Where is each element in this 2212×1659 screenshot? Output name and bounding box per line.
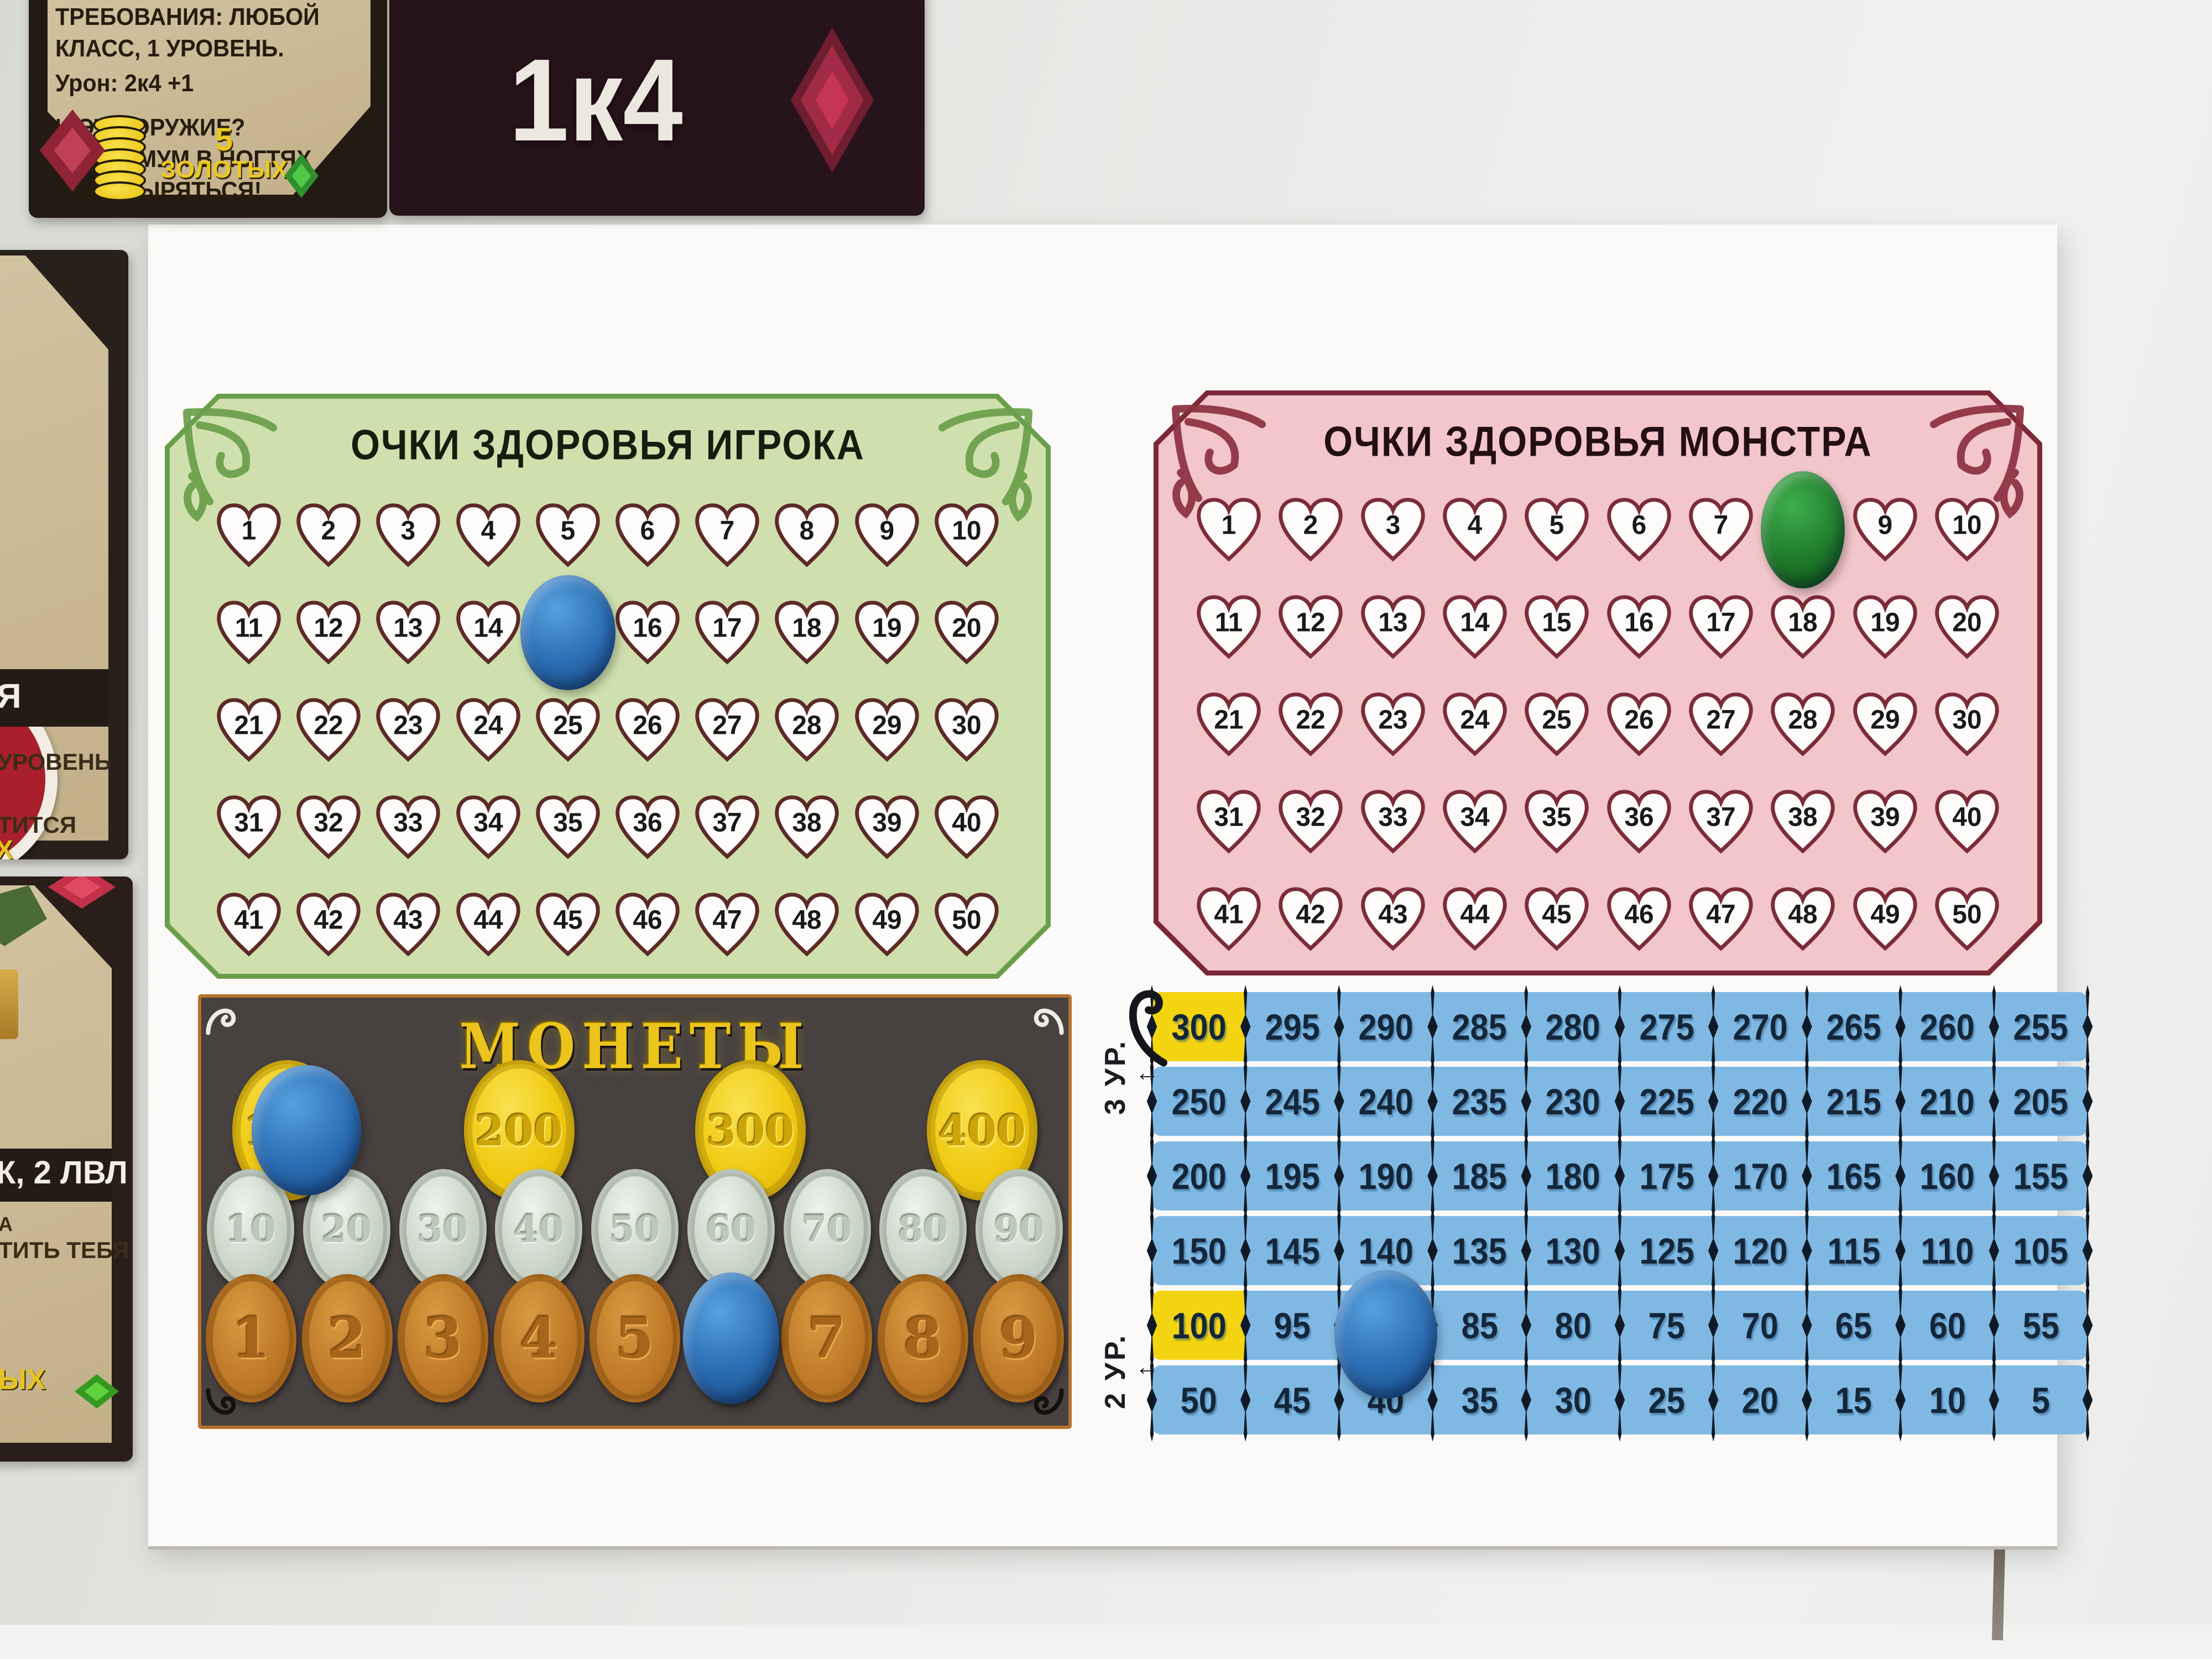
heart-39: 39: [847, 779, 927, 876]
weapon-card-cost: 5 ЗОЛОТЫХ: [160, 124, 288, 184]
heart-5: 5: [1516, 481, 1598, 578]
heart-24: 24: [1434, 676, 1516, 773]
track-cell-210: 210: [1901, 1067, 1994, 1136]
player-hearts-grid: 1234567891011121314151617181920212223242…: [209, 487, 1006, 973]
track-cell-50: 50: [1152, 1365, 1245, 1434]
svg-text:36: 36: [1624, 803, 1653, 832]
track-cell-90: 90: [1339, 1291, 1432, 1360]
copper-coin-7: 7: [781, 1274, 872, 1402]
heart-49: 49: [1844, 870, 1926, 968]
heart-8: 8: [767, 487, 847, 584]
track-cell-160: 160: [1901, 1141, 1994, 1211]
heart-11: 11: [1188, 578, 1270, 676]
track-token[interactable]: [1334, 1270, 1437, 1399]
svg-text:15: 15: [1542, 608, 1572, 638]
track-cell-95: 95: [1245, 1291, 1339, 1360]
heart-2: 2: [289, 487, 368, 584]
heart-48: 48: [767, 876, 847, 973]
silver-coin-90: 90: [975, 1169, 1063, 1290]
card-fragment: ТИТСЯ: [0, 812, 76, 838]
heart-22: 22: [1270, 676, 1352, 773]
svg-text:17: 17: [1706, 608, 1735, 638]
copper-coin-9: 9: [973, 1274, 1064, 1402]
svg-text:12: 12: [314, 614, 343, 643]
heart-10: 10: [927, 487, 1006, 584]
svg-text:23: 23: [394, 711, 423, 740]
track-cell-175: 175: [1620, 1141, 1713, 1211]
scroll-curl-icon: [205, 1387, 240, 1422]
heart-21: 21: [209, 681, 289, 779]
dice-card: 1к4: [389, 0, 925, 216]
scroll-curl-icon: [1030, 1387, 1065, 1422]
player-health-token[interactable]: [520, 575, 615, 690]
track-cell-180: 180: [1526, 1141, 1620, 1211]
coin-token[interactable]: [252, 1065, 361, 1196]
track-cell-190: 190: [1339, 1141, 1432, 1211]
svg-text:26: 26: [633, 711, 662, 740]
svg-text:7: 7: [720, 517, 735, 546]
svg-text:20: 20: [952, 614, 981, 643]
svg-text:39: 39: [872, 808, 901, 838]
heart-21: 21: [1188, 676, 1270, 773]
scroll-curl-icon: [1112, 984, 1173, 1067]
heart-30: 30: [927, 681, 1006, 779]
copper-coin-8: 8: [878, 1274, 968, 1402]
svg-text:13: 13: [1378, 608, 1407, 638]
svg-text:28: 28: [1788, 706, 1818, 735]
svg-text:32: 32: [314, 808, 343, 838]
heart-11: 11: [209, 584, 289, 681]
heart-17: 17: [1680, 578, 1762, 676]
track-cell-195: 195: [1245, 1141, 1339, 1211]
svg-text:37: 37: [1706, 803, 1735, 832]
svg-text:49: 49: [1870, 900, 1900, 930]
track-row-5: 100959085807570656055: [1152, 1291, 2088, 1360]
heart-50: 50: [1926, 870, 2008, 968]
track-cell-120: 120: [1713, 1216, 1807, 1285]
heart-35: 35: [1516, 773, 1598, 870]
level-range-arrow-icon: ↕: [1132, 1071, 1160, 1083]
heart-28: 28: [1762, 676, 1844, 773]
svg-text:8: 8: [800, 517, 815, 546]
heart-4: 4: [448, 487, 528, 584]
heart-45: 45: [1516, 870, 1598, 968]
svg-text:39: 39: [1870, 803, 1900, 832]
svg-text:43: 43: [1378, 900, 1407, 930]
svg-text:24: 24: [1460, 706, 1490, 735]
svg-text:34: 34: [473, 808, 503, 838]
svg-text:44: 44: [473, 906, 503, 935]
track-cell-255: 255: [1994, 992, 2088, 1061]
heart-19: 19: [1844, 578, 1926, 676]
svg-text:25: 25: [553, 711, 582, 740]
svg-text:46: 46: [1624, 900, 1653, 930]
silver-coin-80: 80: [879, 1169, 967, 1290]
track-cell-100: 100: [1152, 1291, 1245, 1360]
card-fragment: ЫХ: [0, 1363, 46, 1396]
card-fragment: Х: [0, 835, 13, 859]
heart-12: 12: [289, 584, 368, 681]
svg-text:9: 9: [1877, 511, 1892, 540]
track-cell-5: 5: [1994, 1365, 2088, 1434]
heart-20: 20: [927, 584, 1006, 681]
monster-hearts-grid: 1234567891011121314151617181920212223242…: [1188, 481, 2008, 968]
svg-text:18: 18: [1788, 608, 1818, 638]
heart-20: 20: [1926, 578, 2008, 676]
svg-text:2: 2: [1303, 511, 1318, 540]
svg-text:22: 22: [1296, 706, 1326, 735]
heart-31: 31: [209, 779, 289, 876]
heart-6: 6: [1598, 481, 1680, 578]
svg-text:6: 6: [1631, 511, 1646, 540]
track-cell-25: 25: [1620, 1365, 1713, 1434]
svg-text:17: 17: [713, 614, 742, 643]
track-cell-225: 225: [1620, 1067, 1713, 1136]
track-row-4: 150145140135130125120115110105: [1152, 1216, 2088, 1285]
heart-43: 43: [1352, 870, 1434, 968]
copper-coin-5: 5: [589, 1274, 680, 1402]
track-row-2: 250245240235230225220215210205: [1152, 1067, 2088, 1136]
scroll-curl-icon: [1030, 1001, 1065, 1036]
heart-46: 46: [608, 876, 687, 973]
heart-29: 29: [1844, 676, 1926, 773]
svg-text:5: 5: [1550, 511, 1564, 540]
level-range-arrow-icon: ↕: [1132, 1365, 1160, 1377]
heart-18: 18: [767, 584, 847, 681]
svg-text:41: 41: [1214, 900, 1244, 930]
track-cell-45: 45: [1245, 1365, 1339, 1434]
svg-text:41: 41: [234, 906, 263, 935]
heart-3: 3: [1352, 481, 1434, 578]
svg-text:7: 7: [1714, 511, 1729, 540]
heart-15: 15: [1516, 578, 1598, 676]
svg-text:22: 22: [314, 711, 343, 740]
card-fragment: А: [0, 1213, 13, 1236]
track-cell-235: 235: [1433, 1067, 1526, 1136]
heart-1: 1: [1188, 481, 1270, 578]
heart-44: 44: [1434, 870, 1516, 968]
track-cell-110: 110: [1901, 1216, 1994, 1285]
svg-text:37: 37: [713, 808, 742, 838]
copper-coin-4: 4: [494, 1274, 585, 1402]
track-cell-170: 170: [1713, 1141, 1807, 1211]
heart-9: 9: [1844, 481, 1926, 578]
svg-text:27: 27: [713, 711, 742, 740]
svg-text:49: 49: [872, 906, 901, 935]
svg-text:18: 18: [792, 614, 822, 643]
track-cell-10: 10: [1901, 1365, 1994, 1434]
svg-text:33: 33: [394, 808, 423, 838]
heart-47: 47: [1680, 870, 1762, 968]
track-cell-65: 65: [1807, 1291, 1900, 1360]
svg-text:48: 48: [1788, 900, 1818, 930]
svg-text:47: 47: [713, 906, 742, 935]
svg-text:1: 1: [1222, 511, 1237, 540]
heart-16: 16: [1598, 578, 1680, 676]
svg-text:42: 42: [1296, 900, 1326, 930]
heart-46: 46: [1598, 870, 1680, 968]
scroll-curl-icon: [205, 1001, 240, 1036]
heart-33: 33: [368, 779, 448, 876]
track-cell-80: 80: [1526, 1291, 1620, 1360]
track-cell-285: 285: [1433, 992, 1526, 1061]
svg-text:16: 16: [1624, 608, 1653, 638]
heart-28: 28: [767, 681, 847, 779]
track-cell-15: 15: [1807, 1365, 1900, 1434]
heart-34: 34: [448, 779, 528, 876]
svg-text:11: 11: [1215, 608, 1243, 638]
track-cell-260: 260: [1901, 992, 1994, 1061]
svg-text:35: 35: [1542, 803, 1572, 832]
heart-33: 33: [1352, 773, 1434, 870]
cost-label: ЗОЛОТЫХ: [160, 156, 288, 184]
silver-coin-30: 30: [399, 1169, 487, 1290]
svg-text:19: 19: [1870, 608, 1900, 638]
heart-31: 31: [1188, 773, 1270, 870]
track-cell-70: 70: [1713, 1291, 1807, 1360]
level-label-2: 2 УР.↕: [1099, 1302, 1138, 1440]
svg-text:26: 26: [1624, 706, 1653, 735]
track-row-6: 5045403530252015105: [1152, 1365, 2088, 1434]
heart-2: 2: [1270, 481, 1352, 578]
heart-42: 42: [1270, 870, 1352, 968]
svg-text:36: 36: [633, 808, 662, 838]
heart-4: 4: [1434, 481, 1516, 578]
heart-18: 18: [1762, 578, 1844, 676]
heart-3: 3: [368, 487, 448, 584]
player-health-title: ОЧКИ ЗДОРОВЬЯ ИГРОКА: [165, 394, 1051, 469]
heart-7: 7: [1680, 481, 1762, 578]
heart-40: 40: [1926, 773, 2008, 870]
track-cell-200: 200: [1152, 1141, 1245, 1211]
svg-text:29: 29: [872, 711, 901, 740]
silver-coins-row: 102030405060708090: [201, 1172, 1068, 1286]
card-art-fragment: [0, 969, 18, 1039]
track-cell-130: 130: [1526, 1216, 1620, 1285]
svg-text:28: 28: [792, 711, 822, 740]
heart-14: 14: [1434, 578, 1516, 676]
svg-text:6: 6: [640, 517, 655, 546]
heart-26: 26: [1598, 676, 1680, 773]
track-cell-55: 55: [1994, 1291, 2088, 1360]
svg-text:21: 21: [234, 711, 263, 740]
svg-text:14: 14: [473, 614, 503, 643]
track-cell-185: 185: [1433, 1141, 1526, 1211]
svg-text:50: 50: [1952, 900, 1981, 930]
svg-text:45: 45: [553, 906, 582, 935]
track-cell-240: 240: [1339, 1067, 1432, 1136]
monster-health-panel: ОЧКИ ЗДОРОВЬЯ МОНСТРА 123456789101112131…: [1154, 390, 2042, 975]
svg-text:40: 40: [1952, 803, 1981, 832]
svg-text:10: 10: [1952, 511, 1981, 540]
svg-text:21: 21: [1214, 706, 1244, 735]
svg-text:29: 29: [1870, 706, 1900, 735]
svg-text:12: 12: [1296, 608, 1326, 638]
heart-39: 39: [1844, 773, 1926, 870]
silver-coin-50: 50: [591, 1169, 679, 1290]
monster-health-title: ОЧКИ ЗДОРОВЬЯ МОНСТРА: [1154, 390, 2042, 466]
track-cell-145: 145: [1245, 1216, 1339, 1285]
game-board: ОЧКИ ЗДОРОВЬЯ ИГРОКА 1234567891011121314…: [148, 225, 2057, 1546]
svg-text:35: 35: [553, 808, 582, 838]
svg-text:50: 50: [952, 906, 981, 935]
track-cell-250: 250: [1152, 1067, 1245, 1136]
svg-text:13: 13: [394, 614, 423, 643]
heart-25: 25: [1516, 676, 1598, 773]
silver-coin-40: 40: [495, 1169, 582, 1290]
track-cell-165: 165: [1807, 1141, 1900, 1211]
heart-27: 27: [687, 681, 767, 779]
heart-37: 37: [1680, 773, 1762, 870]
heart-6: 6: [608, 487, 687, 584]
track-cell-60: 60: [1901, 1291, 1994, 1360]
cost-value: 5: [160, 124, 288, 156]
svg-text:31: 31: [234, 808, 263, 838]
heart-49: 49: [847, 876, 927, 973]
svg-text:27: 27: [1706, 706, 1735, 735]
heart-27: 27: [1680, 676, 1762, 773]
heart-13: 13: [368, 584, 448, 681]
track-cell-20: 20: [1713, 1365, 1807, 1434]
heart-41: 41: [209, 876, 289, 973]
track-cell-280: 280: [1526, 992, 1620, 1061]
svg-text:30: 30: [952, 711, 981, 740]
monster-health-token[interactable]: [1761, 471, 1845, 588]
track-cell-290: 290: [1339, 992, 1432, 1061]
track-cell-105: 105: [1994, 1216, 2088, 1285]
svg-text:4: 4: [481, 517, 495, 546]
card-fragment: ТИТЬ ТЕБЯ: [0, 1237, 129, 1264]
heart-37: 37: [687, 779, 767, 876]
svg-text:33: 33: [1378, 803, 1407, 832]
heart-26: 26: [608, 681, 687, 779]
track-cell-85: 85: [1433, 1291, 1526, 1360]
track-cell-75: 75: [1620, 1291, 1713, 1360]
player-health-panel: ОЧКИ ЗДОРОВЬЯ ИГРОКА 1234567891011121314…: [165, 394, 1051, 979]
heart-23: 23: [368, 681, 448, 779]
weapon-card-requirements: ТРЕБОВАНИЯ: ЛЮБОЙ КЛАСС, 1 УРОВЕНЬ.: [55, 1, 346, 64]
card-fragment: К, 2 ЛВЛ: [0, 1154, 128, 1191]
heart-17: 17: [687, 584, 767, 681]
heart-43: 43: [368, 876, 448, 973]
heart-30: 30: [1926, 676, 2008, 773]
silver-coin-60: 60: [687, 1169, 775, 1290]
svg-text:23: 23: [1378, 706, 1407, 735]
heart-32: 32: [1270, 773, 1352, 870]
card-fragment: Я: [0, 677, 22, 716]
heart-1: 1: [209, 487, 289, 584]
heart-19: 19: [847, 584, 927, 681]
track-cell-30: 30: [1526, 1365, 1620, 1434]
svg-text:34: 34: [1460, 803, 1490, 832]
svg-text:32: 32: [1296, 803, 1326, 832]
coin-stack-icon: [93, 124, 148, 201]
heart-13: 13: [1352, 578, 1434, 676]
svg-text:3: 3: [1385, 511, 1400, 540]
track-cell-35: 35: [1433, 1365, 1526, 1434]
track-cell-115: 115: [1807, 1216, 1900, 1285]
coin-token[interactable]: [683, 1272, 779, 1404]
heart-48: 48: [1762, 870, 1844, 968]
track-cell-295: 295: [1245, 992, 1339, 1061]
heart-16: 16: [608, 584, 687, 681]
svg-text:24: 24: [473, 711, 503, 740]
heart-15: 15: [528, 584, 608, 681]
svg-text:40: 40: [952, 808, 981, 838]
track-cell-275: 275: [1620, 992, 1713, 1061]
coins-panel: МОНЕТЫ 100200300400 102030405060708090 1…: [198, 994, 1072, 1429]
track-row-1: 300295290285280275270265260255: [1152, 992, 2088, 1061]
heart-45: 45: [528, 876, 608, 973]
svg-text:44: 44: [1460, 900, 1490, 930]
track-cell-150: 150: [1152, 1216, 1245, 1285]
svg-text:30: 30: [1952, 706, 1981, 735]
copper-coin-3: 3: [398, 1274, 488, 1402]
svg-text:2: 2: [321, 517, 336, 546]
heart-36: 36: [1598, 773, 1680, 870]
svg-text:11: 11: [235, 614, 263, 643]
left-card-top: Я УРОВЕНЬ ТИТСЯ Х: [0, 250, 128, 859]
heart-24: 24: [448, 681, 528, 779]
weapon-card-damage: Урон: 2к4 +1: [55, 67, 346, 99]
copper-coin-6: 6: [686, 1274, 776, 1402]
heart-29: 29: [847, 681, 927, 779]
svg-text:46: 46: [633, 906, 662, 935]
heart-8: 8: [1762, 481, 1844, 578]
heart-50: 50: [927, 876, 1006, 973]
heart-10: 10: [1926, 481, 2008, 578]
svg-text:20: 20: [1952, 608, 1981, 638]
svg-text:31: 31: [1214, 803, 1244, 832]
svg-text:9: 9: [879, 517, 894, 546]
svg-text:48: 48: [792, 906, 822, 935]
heart-38: 38: [1762, 773, 1844, 870]
table-edge-strip: [0, 1625, 2212, 1659]
svg-text:38: 38: [1788, 803, 1818, 832]
red-diamond-icon: [48, 877, 116, 909]
heart-35: 35: [528, 779, 608, 876]
track-cell-205: 205: [1994, 1067, 2088, 1136]
track-cell-220: 220: [1713, 1067, 1807, 1136]
svg-text:5: 5: [561, 517, 576, 546]
heart-5: 5: [528, 487, 608, 584]
heart-25: 25: [528, 681, 608, 779]
copper-coin-2: 2: [302, 1274, 393, 1402]
track-cell-230: 230: [1526, 1067, 1620, 1136]
svg-text:1: 1: [242, 517, 257, 546]
svg-text:47: 47: [1706, 900, 1735, 930]
left-card-bottom: К, 2 ЛВЛ А ТИТЬ ТЕБЯ ЫХ: [0, 877, 133, 1462]
heart-32: 32: [289, 779, 368, 876]
svg-text:10: 10: [952, 517, 981, 546]
track-cell-245: 245: [1245, 1067, 1339, 1136]
copper-coin-1: 1: [206, 1274, 296, 1402]
svg-text:43: 43: [394, 906, 423, 935]
heart-38: 38: [767, 779, 847, 876]
track-cell-155: 155: [1994, 1141, 2088, 1211]
heart-41: 41: [1188, 870, 1270, 968]
heart-12: 12: [1270, 578, 1352, 676]
svg-text:4: 4: [1468, 511, 1483, 540]
heart-7: 7: [687, 487, 767, 584]
heart-40: 40: [927, 779, 1006, 876]
heart-42: 42: [289, 876, 368, 973]
heart-44: 44: [448, 876, 528, 973]
heart-22: 22: [289, 681, 368, 779]
monster-hp-track: 3002952902852802752702652602552502452402…: [1152, 992, 2088, 1434]
track-row-3: 200195190185180175170165160155: [1152, 1141, 2088, 1211]
heart-23: 23: [1352, 676, 1434, 773]
